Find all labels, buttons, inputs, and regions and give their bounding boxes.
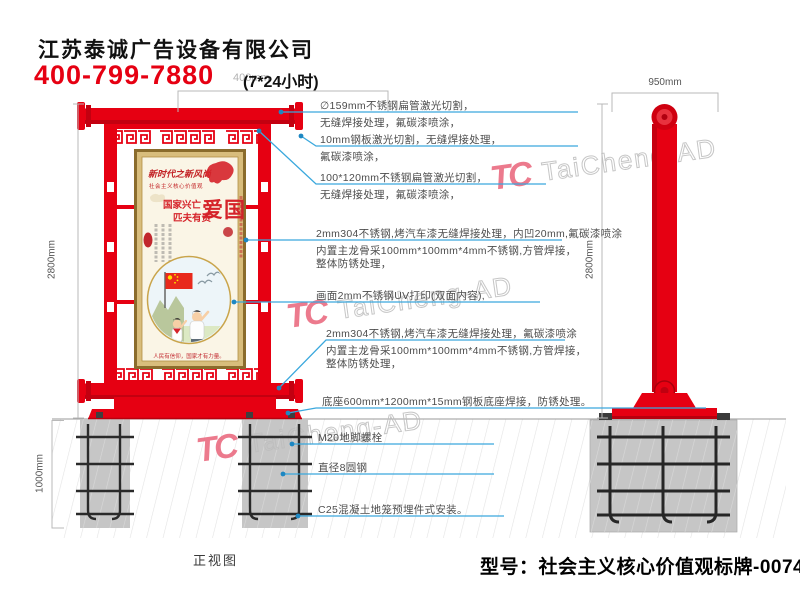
annotation-cabinet-3: 整体防锈处理， — [316, 256, 392, 271]
poster-couplet-1: 国家兴亡 — [163, 199, 202, 211]
anchor-clamp — [599, 413, 612, 420]
annotation-lower-cabinet-3: 整体防锈处理， — [326, 356, 402, 371]
annotation-anchor-bolt: M20地脚螺栓 — [318, 430, 383, 445]
annotation-print: 画面2mm不锈钢UV打印(双面内容), — [316, 288, 485, 303]
bottom-fretwork — [104, 369, 271, 383]
drawing-sheet: TC TaiCheng-AD TC TaiCheng-AD TC TaiChen… — [0, 0, 800, 600]
annotation-tube-2: 无缝焊接处理，氟碳漆喷涂， — [320, 187, 460, 202]
base-pedestal — [88, 397, 302, 419]
hotline-hours: (7*24小时) — [243, 68, 319, 92]
dim-front-height: 2800mm — [47, 230, 58, 290]
annotation-concrete: C25混凝土地笼预埋件式安装。 — [318, 502, 468, 517]
annotation-lower-cabinet-1: 2mm304不锈钢,烤汽车漆无缝焊接处理，氟碳漆喷涂 — [326, 326, 577, 341]
dim-foundation-depth: 1000mm — [35, 444, 46, 504]
poster-banner: 社会主义核心价值观 — [149, 182, 203, 190]
annotation-round-steel: 直径8圆钢 — [318, 460, 367, 475]
annotation-pipe-2: 无缝焊接处理，氟碳漆喷涂， — [320, 115, 460, 130]
poster-panel: 新时代之新风尚 社会主义核心价值观 爱国 国家兴亡 匹夫有责 — [134, 149, 246, 369]
seal-stamp — [144, 233, 153, 248]
front-view: 新时代之新风尚 社会主义核心价值观 爱国 国家兴亡 匹夫有责 — [77, 102, 303, 419]
poster-couplet-2: 匹夫有责 — [173, 212, 212, 224]
watermark-logo: TC — [488, 154, 536, 198]
watermark-1: TC TaiCheng-AD — [488, 128, 720, 197]
annotation-pipe-1: ∅159mm不锈钢扁管激光切割， — [320, 98, 474, 113]
annotation-tube-1: 100*120mm不锈钢扁管激光切割， — [320, 170, 487, 185]
annotation-plate-1: 10mm钢板激光切割，无缝焊接处理， — [320, 132, 502, 147]
round-seal — [223, 227, 233, 237]
hotline-phone: 400-799-7880 — [34, 60, 214, 91]
dim-side-width: 950mm — [612, 77, 718, 88]
anchor-bolt — [246, 412, 253, 418]
annotation-plate-2: 氟碳漆喷涂， — [320, 149, 385, 164]
poster-footer-slogan: 人民有信仰，国家才有力量。 — [153, 352, 225, 360]
poster-calligraphy: 新时代之新风尚 — [148, 169, 212, 179]
front-view-label: 正视图 — [193, 550, 238, 569]
model-number: 型号：社会主义核心价值观标牌-0074 — [480, 552, 800, 579]
top-fretwork — [104, 124, 271, 143]
anchor-bolt — [96, 412, 103, 418]
annotation-baseplate: 底座600mm*1200mm*15mm钢板底座焊接，防锈处理。 — [322, 394, 592, 409]
anchor-clamp — [717, 413, 730, 420]
annotation-cabinet-1: 2mm304不锈钢,烤汽车漆无缝焊接处理，内凹20mm,氟碳漆喷涂 — [316, 226, 622, 241]
watermark-text: TaiCheng-AD — [540, 132, 719, 186]
